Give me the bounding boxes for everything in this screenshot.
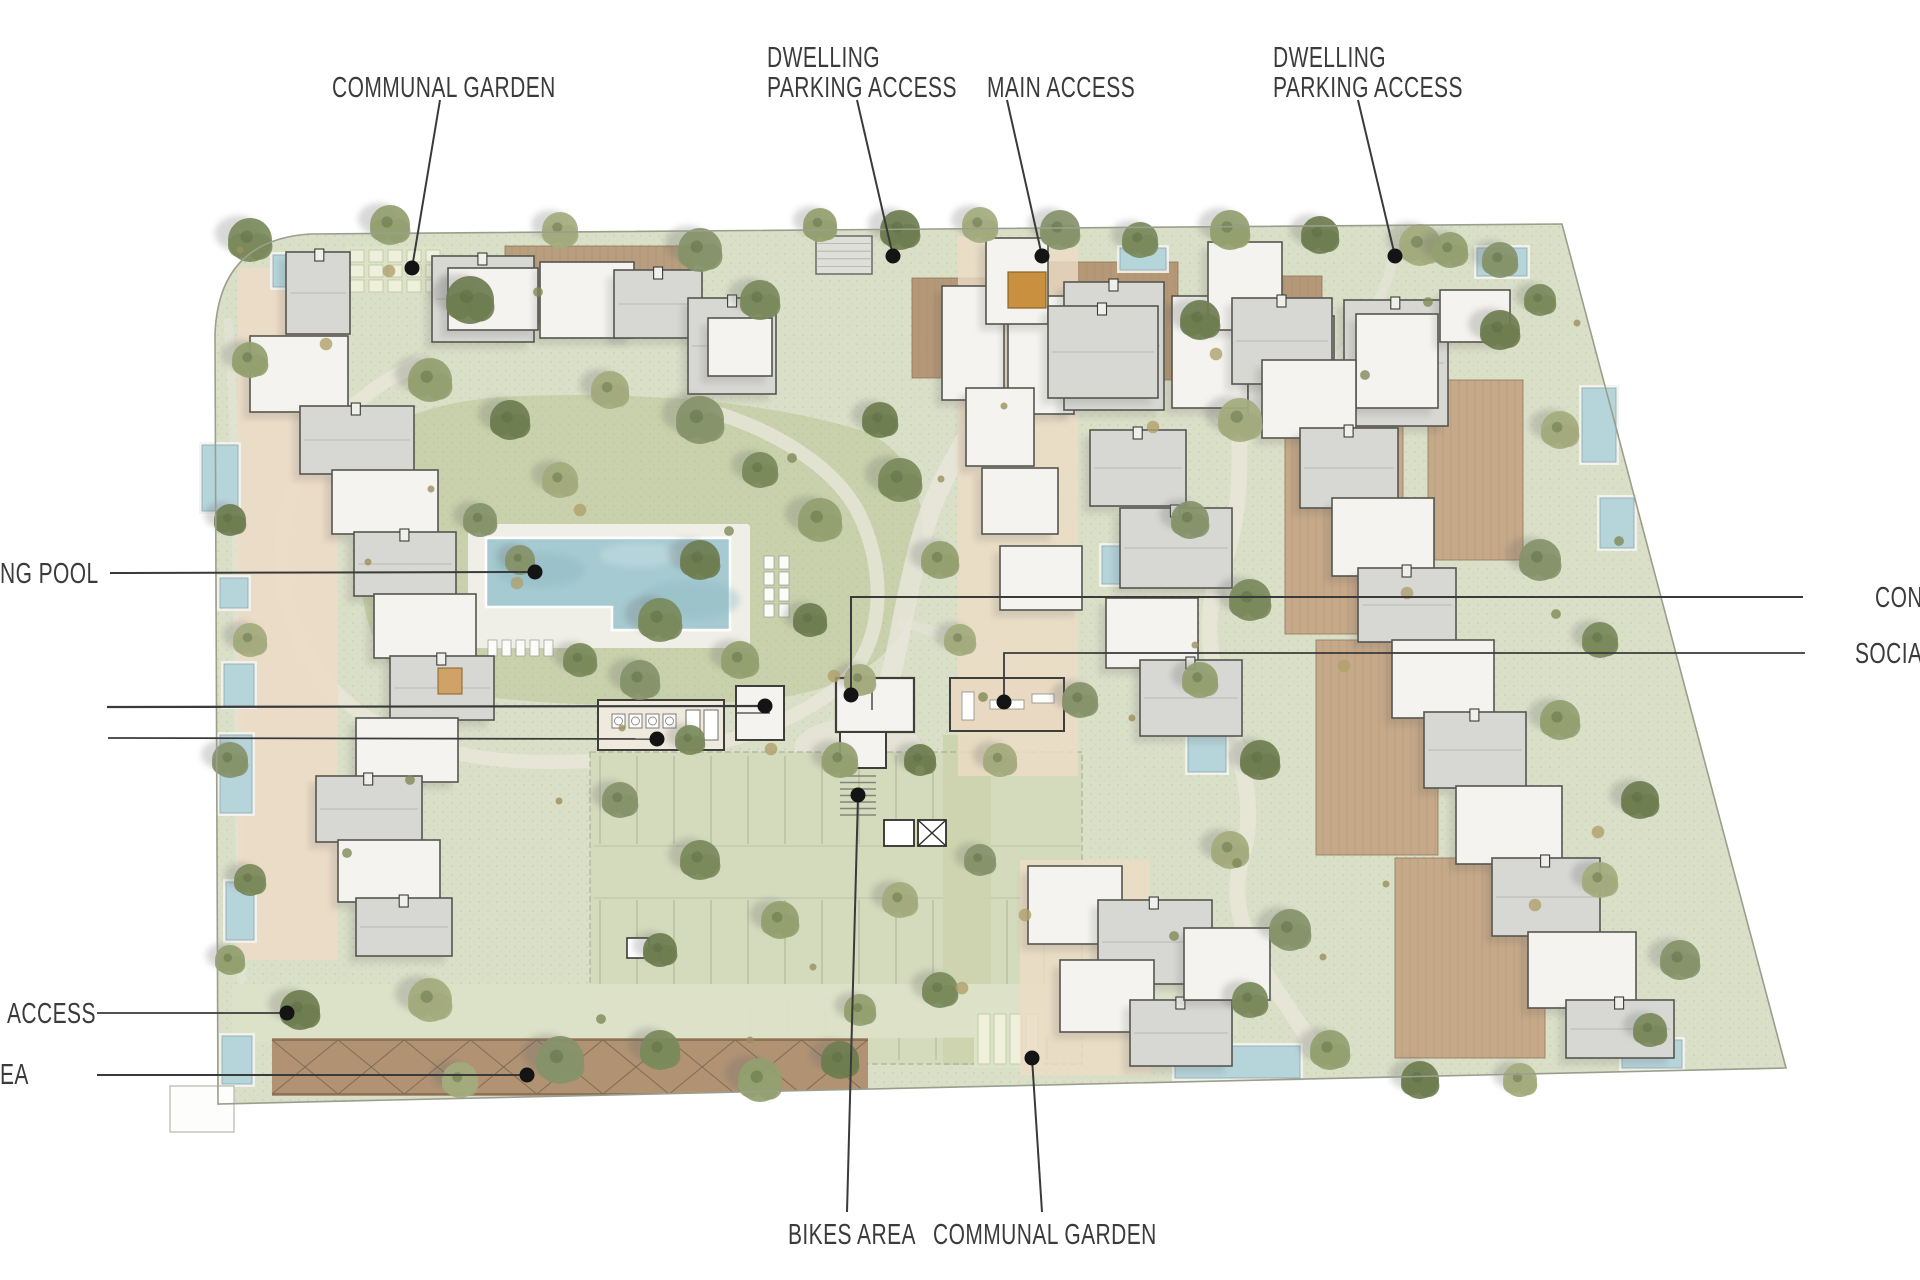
leader-dot <box>997 695 1012 710</box>
leader-dot <box>851 788 866 803</box>
leader-dot <box>280 1006 295 1021</box>
label-dwelling-parking-left-1: DWELLING <box>767 44 880 73</box>
leader-dot <box>1025 1051 1040 1066</box>
label-main-access: MAIN ACCESS <box>987 74 1135 103</box>
masterplan-canvas: COMMUNAL GARDEN DWELLING PARKING ACCESS … <box>0 0 1920 1280</box>
leader-dot <box>520 1068 535 1083</box>
leader-dot <box>1035 249 1050 264</box>
label-concierge: CON <box>1875 584 1920 613</box>
label-access: ACCESS <box>7 1000 96 1029</box>
leader-dot <box>405 261 420 276</box>
label-swimming-pool: NG POOL <box>0 560 99 589</box>
label-communal-garden-bottom: COMMUNAL GARDEN <box>933 1221 1157 1250</box>
label-dwelling-parking-right-1: DWELLING <box>1273 44 1386 73</box>
leader-dot <box>1388 249 1403 264</box>
label-communal-garden-top: COMMUNAL GARDEN <box>332 74 556 103</box>
label-social: SOCIA <box>1855 640 1920 669</box>
label-dwelling-parking-right-2: PARKING ACCESS <box>1273 74 1463 103</box>
leader-dot <box>528 565 543 580</box>
leader-dot <box>844 688 859 703</box>
leader-dot <box>758 699 773 714</box>
leader-dot <box>886 249 901 264</box>
swimming-pool <box>468 524 789 656</box>
label-area: EA <box>0 1061 29 1090</box>
leader-dot <box>650 732 665 747</box>
label-dwelling-parking-left-2: PARKING ACCESS <box>767 74 957 103</box>
site-plan-drawing <box>0 0 1920 1280</box>
label-bikes-area: BIKES AREA <box>788 1221 916 1250</box>
